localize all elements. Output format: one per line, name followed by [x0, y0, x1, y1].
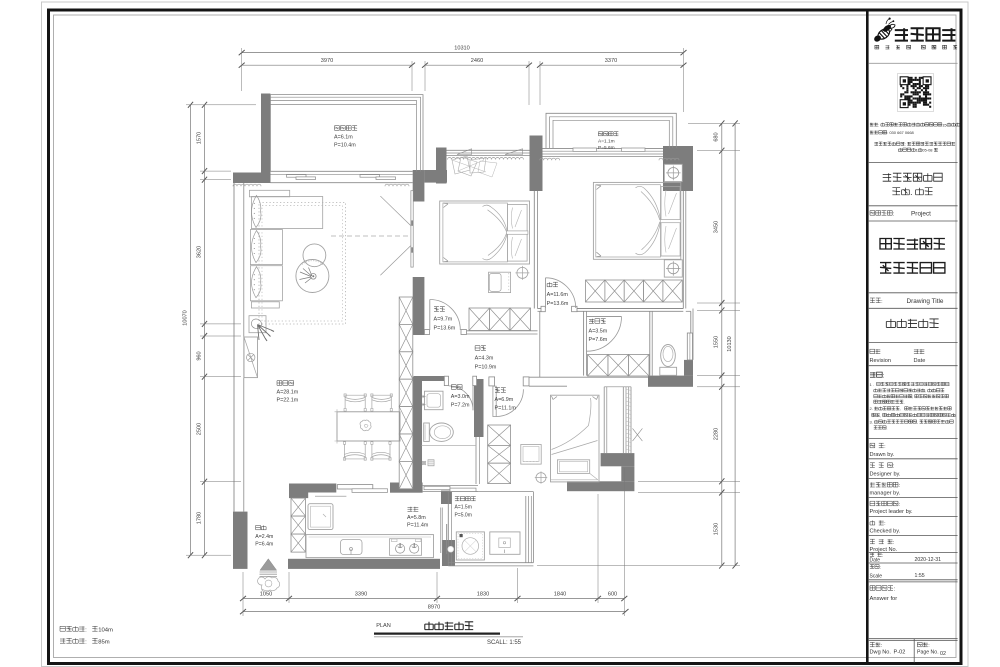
svg-text:05-08: 05-08 [922, 148, 933, 153]
svg-text:1530: 1530 [713, 523, 719, 535]
svg-text:P=22.1m: P=22.1m [277, 397, 299, 403]
svg-text:3450: 3450 [713, 221, 719, 233]
svg-text:P=5.6m: P=5.6m [598, 145, 615, 151]
svg-text:: 030 667 0668: : 030 667 0668 [887, 130, 914, 135]
svg-text:02: 02 [940, 651, 946, 657]
svg-text:Drawn by.: Drawn by. [870, 452, 895, 458]
svg-text:Answer for: Answer for [870, 596, 898, 602]
svg-text:.: . [949, 382, 950, 387]
svg-text::: : [899, 502, 900, 508]
svg-text:A=11.6m: A=11.6m [547, 292, 569, 298]
svg-text:A=9.7m: A=9.7m [434, 317, 453, 323]
svg-text:A=28.1m: A=28.1m [277, 390, 299, 396]
svg-text:85m: 85m [98, 640, 110, 646]
svg-text:A=6.9m: A=6.9m [495, 397, 514, 403]
svg-text:P=13.6m: P=13.6m [547, 301, 569, 307]
svg-text:Dwg No.: Dwg No. [870, 650, 892, 656]
svg-text:,: , [912, 394, 913, 399]
svg-text:680: 680 [713, 132, 719, 141]
svg-text:3970: 3970 [321, 58, 333, 64]
svg-text:A=5.8m: A=5.8m [407, 515, 426, 521]
svg-text:Scale: Scale [870, 573, 883, 579]
svg-text::: : [893, 211, 894, 217]
svg-text:104m: 104m [98, 628, 113, 634]
svg-text:1550: 1550 [713, 336, 719, 348]
svg-text:P=10.4m: P=10.4m [334, 142, 356, 148]
svg-text:Revision: Revision [870, 358, 891, 364]
svg-text:,: , [880, 413, 881, 418]
svg-text:2280: 2280 [713, 428, 719, 440]
svg-text:Date: Date [914, 358, 926, 364]
svg-text:Page No.: Page No. [917, 650, 939, 656]
svg-text:.: . [955, 413, 956, 418]
svg-text:,: , [925, 388, 926, 393]
svg-text:P=11.1m: P=11.1m [495, 406, 517, 412]
svg-text:.: . [910, 187, 912, 197]
svg-text:1 .: 1 . [870, 382, 874, 387]
svg-text::: : [881, 299, 882, 305]
svg-text::: : [884, 521, 885, 527]
svg-text::: : [883, 373, 885, 380]
svg-text:3390: 3390 [355, 591, 367, 597]
svg-text:A=6.1m: A=6.1m [334, 135, 353, 141]
svg-text::: : [905, 142, 906, 147]
svg-text:Drawing Title: Drawing Title [907, 298, 944, 305]
svg-text:1840: 1840 [554, 591, 566, 597]
svg-text:A=3.5m: A=3.5m [589, 329, 608, 335]
svg-text:15: 15 [942, 122, 947, 127]
svg-text:1570: 1570 [196, 132, 202, 144]
svg-text:3370: 3370 [605, 58, 617, 64]
svg-text:Project leader by.: Project leader by. [870, 509, 914, 515]
svg-text:A=3.0m: A=3.0m [451, 394, 470, 400]
svg-text:P=7.6m: P=7.6m [589, 337, 608, 343]
svg-text:SCALL: 1:55: SCALL: 1:55 [487, 640, 522, 646]
svg-text::: : [884, 444, 885, 450]
svg-text::: : [928, 643, 929, 649]
svg-text:A=1.5m: A=1.5m [455, 505, 472, 511]
svg-text::: : [882, 553, 883, 558]
svg-text:A=4.3m: A=4.3m [475, 356, 494, 362]
svg-text:Checked by.: Checked by. [870, 528, 901, 534]
svg-text::: : [878, 122, 879, 127]
svg-text:2.: 2. [870, 406, 873, 411]
svg-text:8970: 8970 [428, 604, 440, 610]
svg-text:P=13.6m: P=13.6m [434, 325, 456, 331]
svg-text::: : [899, 483, 900, 489]
svg-text:A=2.4m: A=2.4m [255, 534, 273, 540]
svg-text:1780: 1780 [196, 512, 202, 524]
svg-text::: : [893, 464, 894, 470]
svg-text:1830: 1830 [477, 591, 489, 597]
svg-text:P=5.0m: P=5.0m [455, 513, 472, 519]
svg-text:10310: 10310 [454, 46, 470, 52]
svg-text:2500: 2500 [196, 423, 202, 435]
svg-text:.: . [904, 400, 905, 405]
svg-text:.: . [886, 425, 887, 430]
svg-text:600: 600 [608, 591, 617, 597]
svg-text:960: 960 [196, 351, 202, 360]
svg-text:P=10.9m: P=10.9m [475, 364, 497, 370]
svg-text:P-02: P-02 [894, 650, 906, 656]
svg-text:manager by.: manager by. [870, 490, 901, 496]
svg-text:P=11.4m: P=11.4m [407, 523, 429, 529]
svg-text:Designer by.: Designer by. [870, 472, 901, 478]
svg-text:Project: Project [911, 211, 931, 218]
svg-text:,: , [917, 419, 918, 424]
svg-text::: : [881, 643, 882, 649]
svg-text:Date: Date [870, 557, 881, 563]
svg-text:PLAN: PLAN [376, 623, 391, 629]
svg-text:A=1.1m: A=1.1m [598, 139, 615, 145]
svg-text:10130: 10130 [727, 336, 733, 352]
svg-text:1:55: 1:55 [915, 573, 925, 579]
svg-text:2460: 2460 [471, 58, 483, 64]
svg-text:,: , [900, 406, 901, 411]
svg-text:P=6.4m: P=6.4m [255, 541, 273, 547]
svg-text::: : [880, 565, 881, 570]
svg-text:3.: 3. [870, 419, 873, 424]
svg-text::: : [893, 540, 894, 546]
svg-text:10070: 10070 [182, 310, 188, 326]
svg-text:P=7.2m: P=7.2m [451, 402, 470, 408]
svg-text:2020-12-31: 2020-12-31 [915, 557, 942, 563]
svg-text:3620: 3620 [196, 246, 202, 258]
